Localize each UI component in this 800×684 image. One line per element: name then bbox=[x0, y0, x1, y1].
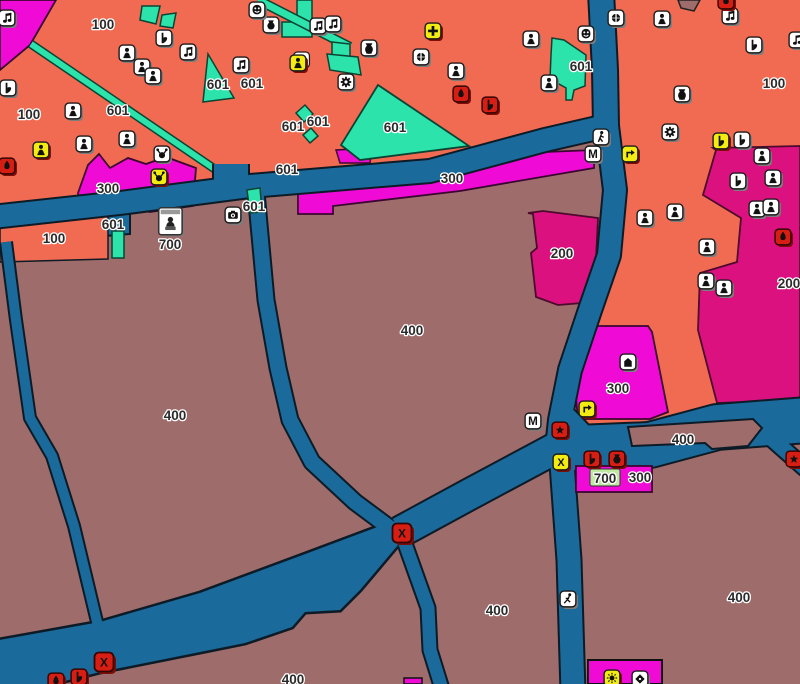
svg-text:700: 700 bbox=[159, 237, 182, 252]
svg-text:400: 400 bbox=[401, 323, 424, 338]
svg-text:601: 601 bbox=[282, 119, 305, 134]
svg-text:M: M bbox=[528, 415, 538, 428]
svg-text:601: 601 bbox=[276, 162, 299, 177]
svg-text:400: 400 bbox=[164, 408, 187, 423]
svg-text:400: 400 bbox=[486, 603, 509, 618]
svg-text:100: 100 bbox=[92, 17, 115, 32]
svg-text:100: 100 bbox=[43, 231, 66, 246]
svg-text:400: 400 bbox=[672, 432, 695, 447]
svg-text:601: 601 bbox=[307, 114, 330, 129]
svg-text:400: 400 bbox=[282, 672, 305, 684]
svg-text:601: 601 bbox=[102, 217, 125, 232]
svg-text:200: 200 bbox=[551, 246, 574, 261]
svg-text:601: 601 bbox=[241, 76, 264, 91]
svg-text:601: 601 bbox=[384, 120, 407, 135]
svg-text:300: 300 bbox=[629, 470, 652, 485]
svg-text:601: 601 bbox=[107, 103, 130, 118]
svg-text:300: 300 bbox=[607, 381, 630, 396]
svg-text:400: 400 bbox=[728, 590, 751, 605]
svg-text:601: 601 bbox=[243, 199, 266, 214]
svg-text:100: 100 bbox=[18, 107, 41, 122]
svg-text:601: 601 bbox=[207, 77, 230, 92]
svg-text:X: X bbox=[557, 457, 565, 469]
svg-text:100: 100 bbox=[763, 76, 786, 91]
svg-text:X: X bbox=[100, 656, 108, 670]
svg-text:601: 601 bbox=[570, 59, 593, 74]
svg-text:300: 300 bbox=[97, 181, 120, 196]
svg-text:300: 300 bbox=[441, 171, 464, 186]
svg-text:700: 700 bbox=[594, 471, 617, 486]
svg-text:M: M bbox=[588, 148, 598, 161]
svg-text:X: X bbox=[398, 527, 406, 541]
svg-text:200: 200 bbox=[778, 276, 800, 291]
